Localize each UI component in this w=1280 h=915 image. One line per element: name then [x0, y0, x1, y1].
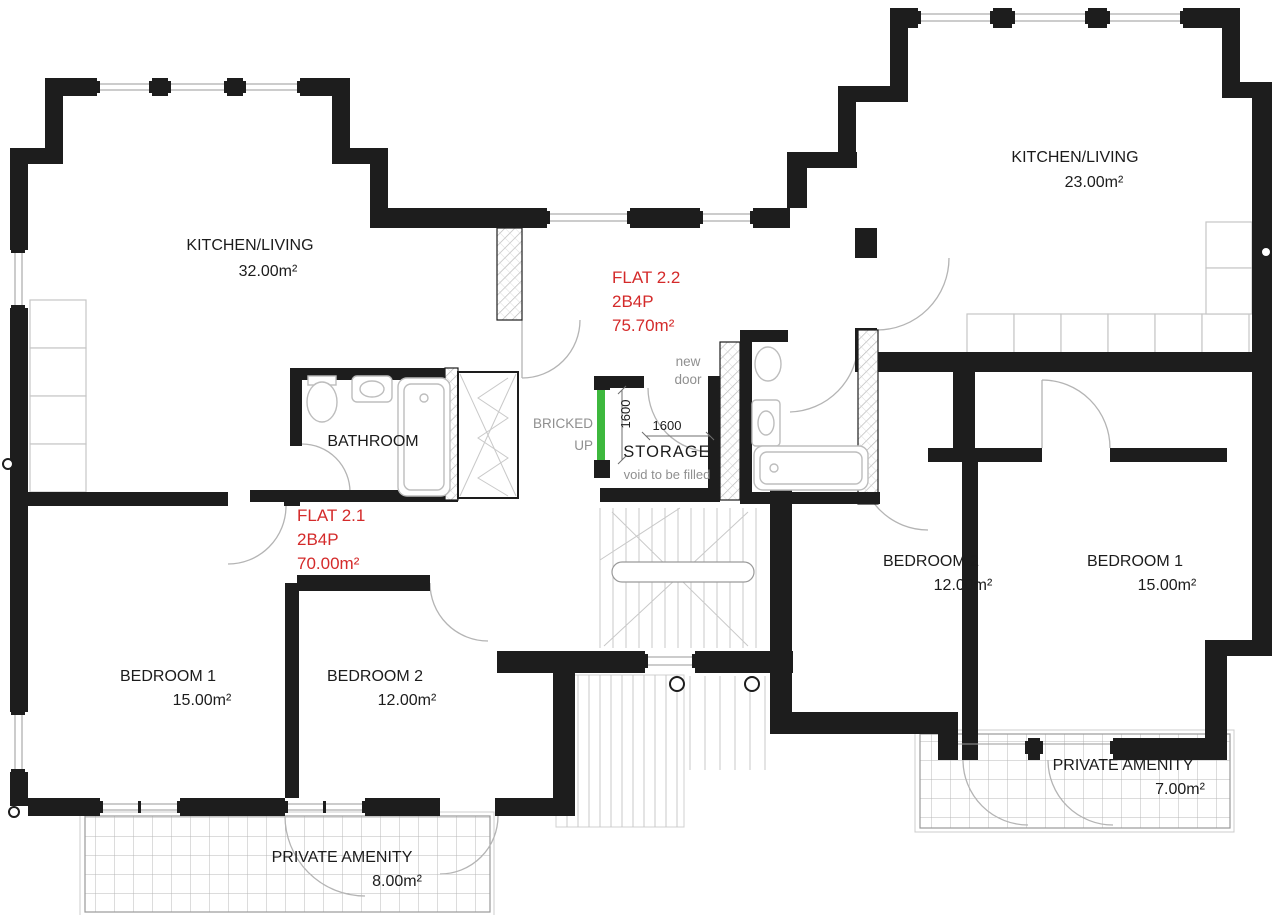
kitchen-living-area-flat-2-1: 32.00m² — [239, 263, 298, 280]
dim-1600-horizontal: 1600 — [642, 418, 714, 440]
kitchen-living-area-flat-2-2: 23.00m² — [1065, 174, 1124, 191]
kitchen-counter-flat-2-2 — [967, 222, 1252, 354]
private-amenity-label-right: PRIVATE AMENITY — [1053, 757, 1194, 774]
flat-2-2-tag: FLAT 2.2 — [612, 268, 680, 287]
new-door-note-line-2: door — [674, 372, 702, 387]
flat-2-1-occupancy: 2B4P — [297, 530, 339, 549]
bricked-up-note-line-1: BRICKED — [533, 416, 593, 431]
kitchen-door-flat-2-2 — [877, 258, 949, 330]
private-amenity-area-right: 7.00m² — [1155, 781, 1205, 798]
floor-plan-page: 1600 1600 STORAGE void to be filled — [0, 0, 1280, 915]
bedroom-2-area-flat-2-2: 12.00m² — [934, 577, 993, 594]
bedroom-1-label-flat-2-1: BEDROOM 1 — [120, 668, 216, 685]
flat-2-1-entrance-door — [522, 320, 580, 378]
toilet-icon — [307, 382, 337, 422]
bedroom-2-label-flat-2-2: BEDROOM 2 — [883, 553, 979, 570]
bedroom-2-door-flat-2-1 — [430, 583, 488, 641]
private-amenity-area-left: 8.00m² — [372, 873, 422, 890]
stair-handrail — [612, 562, 754, 582]
floor-plan-drawing: 1600 1600 STORAGE void to be filled — [0, 0, 1280, 915]
staircase — [600, 508, 756, 648]
bathroom-door-flat-2-1 — [302, 444, 350, 492]
bricked-up-note-line-2: UP — [574, 438, 593, 453]
walls-flat-2-2 — [770, 8, 1272, 760]
bedroom-2-area-flat-2-1: 12.00m² — [378, 692, 437, 709]
svg-text:1600: 1600 — [653, 418, 682, 433]
bedroom-1-area-flat-2-1: 15.00m² — [173, 692, 232, 709]
window — [918, 11, 1183, 24]
new-door-note-line-1: new — [676, 354, 701, 369]
kitchen-counter-flat-2-1 — [30, 300, 86, 492]
new-wall-green — [597, 390, 605, 460]
toilet-icon — [755, 347, 781, 381]
bedroom-1-door-flat-2-1 — [228, 506, 286, 564]
bedroom-1-label-flat-2-2: BEDROOM 1 — [1087, 553, 1183, 570]
storage-label: STORAGE — [623, 443, 710, 461]
bathroom-flat-2-2 — [740, 330, 880, 504]
bedroom-2-label-flat-2-1: BEDROOM 2 — [327, 668, 423, 685]
hall-party-wall — [497, 228, 522, 320]
private-amenity-label-left: PRIVATE AMENITY — [272, 849, 413, 866]
bathroom-door-flat-2-2 — [790, 342, 858, 412]
flat-2-2-occupancy: 2B4P — [612, 292, 654, 311]
flat-2-1-area: 70.00m² — [297, 554, 360, 573]
window — [645, 654, 695, 668]
kitchen-living-label-flat-2-2: KITCHEN/LIVING — [1011, 149, 1138, 166]
flat-2-2-area: 75.70m² — [612, 316, 675, 335]
storage-room: 1600 1600 STORAGE void to be filled — [594, 342, 740, 502]
external-steps — [556, 675, 765, 827]
storage-note: void to be filled — [624, 467, 711, 482]
window — [97, 81, 300, 93]
bedroom-1-area-flat-2-2: 15.00m² — [1138, 577, 1197, 594]
bathroom-label-flat-2-1: BATHROOM — [327, 433, 418, 450]
svg-text:1600: 1600 — [618, 400, 633, 429]
hall-closet-flat-2-1 — [458, 372, 518, 498]
kitchen-living-label-flat-2-1: KITCHEN/LIVING — [186, 237, 313, 254]
flat-2-1-tag: FLAT 2.1 — [297, 506, 365, 525]
bedroom-1-door-flat-2-2 — [1042, 380, 1110, 448]
